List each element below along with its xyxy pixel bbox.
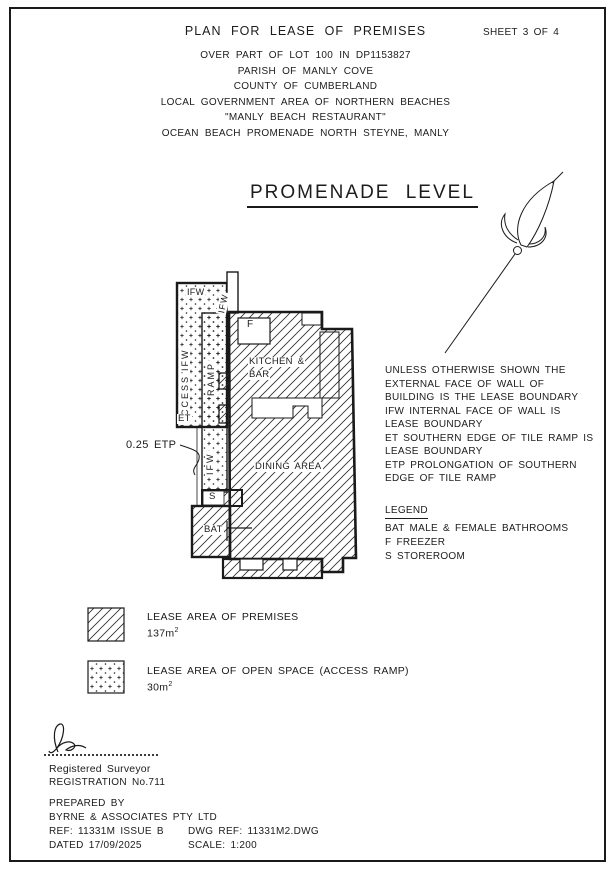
- legend-title: LEGEND: [385, 504, 428, 519]
- note-line: BUILDING IS THE LEASE BOUNDARY: [385, 391, 593, 405]
- label-bar: BAR: [248, 370, 270, 380]
- label-ifw-top: IFW: [186, 287, 205, 297]
- surveyor-caption: Registered Surveyor: [49, 763, 151, 775]
- note-line: EXTERNAL FACE OF WALL OF: [385, 378, 593, 392]
- label-freezer: F: [246, 320, 254, 330]
- signature-line: [44, 754, 158, 756]
- label-etp: 0.25 ETP: [126, 439, 176, 451]
- note-line: LEASE BOUNDARY: [385, 445, 593, 459]
- legend-entry: S STOREROOM: [385, 550, 568, 564]
- prepared-by-label: PREPARED BY: [49, 798, 125, 809]
- premises-area-label: LEASE AREA OF PREMISES: [147, 610, 298, 624]
- label-ifw-top-rotated: IFW: [216, 292, 230, 315]
- reference-number: REF: 11331M ISSUE B: [49, 826, 164, 837]
- plan-sheet: PLAN FOR LEASE OF PREMISES OVER PART OF …: [0, 0, 611, 870]
- label-kitchen: KITCHEN &: [248, 357, 305, 367]
- registration-number: REGISTRATION No.711: [49, 777, 165, 788]
- legend-entry: BAT MALE & FEMALE BATHROOMS: [385, 522, 568, 536]
- scale: SCALE: 1:200: [188, 840, 257, 851]
- note-line: ETP PROLONGATION OF SOUTHERN: [385, 459, 593, 473]
- abbreviation-legend: LEGEND BAT MALE & FEMALE BATHROOMS F FRE…: [385, 504, 568, 564]
- label-store: S: [208, 492, 217, 502]
- label-bathrooms: BAT: [203, 525, 224, 535]
- premises-area-value: 137m2: [147, 624, 298, 641]
- open-space-area-value: 30m2: [147, 678, 409, 695]
- label-ifw-lower: IFW: [205, 452, 215, 477]
- premises-area-item: LEASE AREA OF PREMISES 137m2: [147, 610, 298, 641]
- note-line: IFW INTERNAL FACE OF WALL IS: [385, 405, 593, 419]
- company-name: BYRNE & ASSOCIATES PTY LTD: [49, 812, 217, 823]
- legend-entry: F FREEZER: [385, 536, 568, 550]
- open-space-area-label: LEASE AREA OF OPEN SPACE (ACCESS RAMP): [147, 664, 409, 678]
- label-ifw-left: IFW: [180, 348, 190, 373]
- dwg-reference: DWG REF: 11331M2.DWG: [188, 826, 319, 837]
- dated: DATED 17/09/2025: [49, 840, 142, 851]
- label-dining: DINING AREA: [254, 462, 323, 472]
- open-space-area-item: LEASE AREA OF OPEN SPACE (ACCESS RAMP) 3…: [147, 664, 409, 695]
- label-et: ET: [177, 414, 192, 424]
- note-line: EDGE OF TILE RAMP: [385, 472, 593, 486]
- note-line: ET SOUTHERN EDGE OF TILE RAMP IS: [385, 432, 593, 446]
- boundary-notes: UNLESS OTHERWISE SHOWN THE EXTERNAL FACE…: [385, 364, 593, 486]
- note-line: LEASE BOUNDARY: [385, 418, 593, 432]
- label-ramp: RAMP: [206, 361, 216, 397]
- note-line: UNLESS OTHERWISE SHOWN THE: [385, 364, 593, 378]
